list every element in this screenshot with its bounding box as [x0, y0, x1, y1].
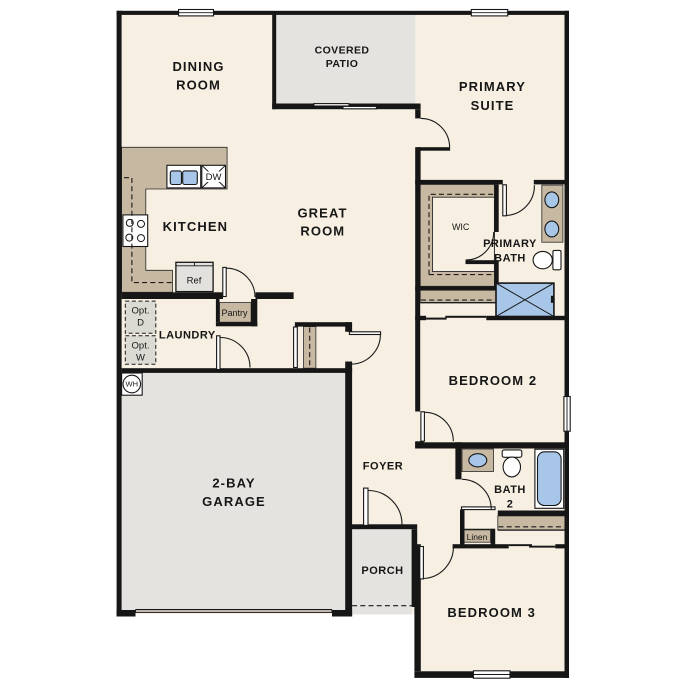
svg-text:ROOM: ROOM: [300, 224, 345, 239]
svg-text:LAUNDRY: LAUNDRY: [159, 330, 216, 342]
svg-text:ROOM: ROOM: [176, 77, 221, 92]
svg-text:PORCH: PORCH: [361, 565, 403, 577]
svg-text:BATH: BATH: [494, 484, 526, 496]
svg-text:WIC: WIC: [452, 222, 470, 232]
svg-text:COVERED: COVERED: [315, 45, 370, 57]
svg-text:Linen: Linen: [467, 532, 488, 542]
svg-text:2: 2: [507, 499, 514, 511]
svg-text:Opt.: Opt.: [132, 340, 150, 351]
svg-text:BATH: BATH: [494, 253, 526, 265]
svg-text:DW: DW: [206, 172, 222, 183]
svg-text:2-BAY: 2-BAY: [212, 476, 255, 491]
svg-text:PRIMARY: PRIMARY: [483, 238, 537, 250]
svg-text:KITCHEN: KITCHEN: [163, 219, 228, 234]
svg-text:GREAT: GREAT: [297, 206, 347, 221]
svg-text:WH: WH: [126, 380, 139, 389]
svg-text:PRIMARY: PRIMARY: [459, 79, 526, 94]
svg-text:DINING: DINING: [172, 59, 224, 74]
svg-text:Ref: Ref: [187, 276, 202, 287]
svg-text:D: D: [137, 317, 144, 328]
svg-text:FOYER: FOYER: [363, 461, 403, 473]
svg-text:SUITE: SUITE: [471, 98, 515, 113]
svg-text:BEDROOM 3: BEDROOM 3: [447, 605, 536, 620]
svg-text:GARAGE: GARAGE: [202, 494, 266, 509]
svg-text:PATIO: PATIO: [326, 58, 359, 70]
svg-text:W: W: [136, 352, 145, 363]
svg-text:BEDROOM 2: BEDROOM 2: [449, 373, 538, 388]
svg-text:Pantry: Pantry: [221, 308, 248, 318]
svg-text:Opt.: Opt.: [132, 305, 150, 316]
